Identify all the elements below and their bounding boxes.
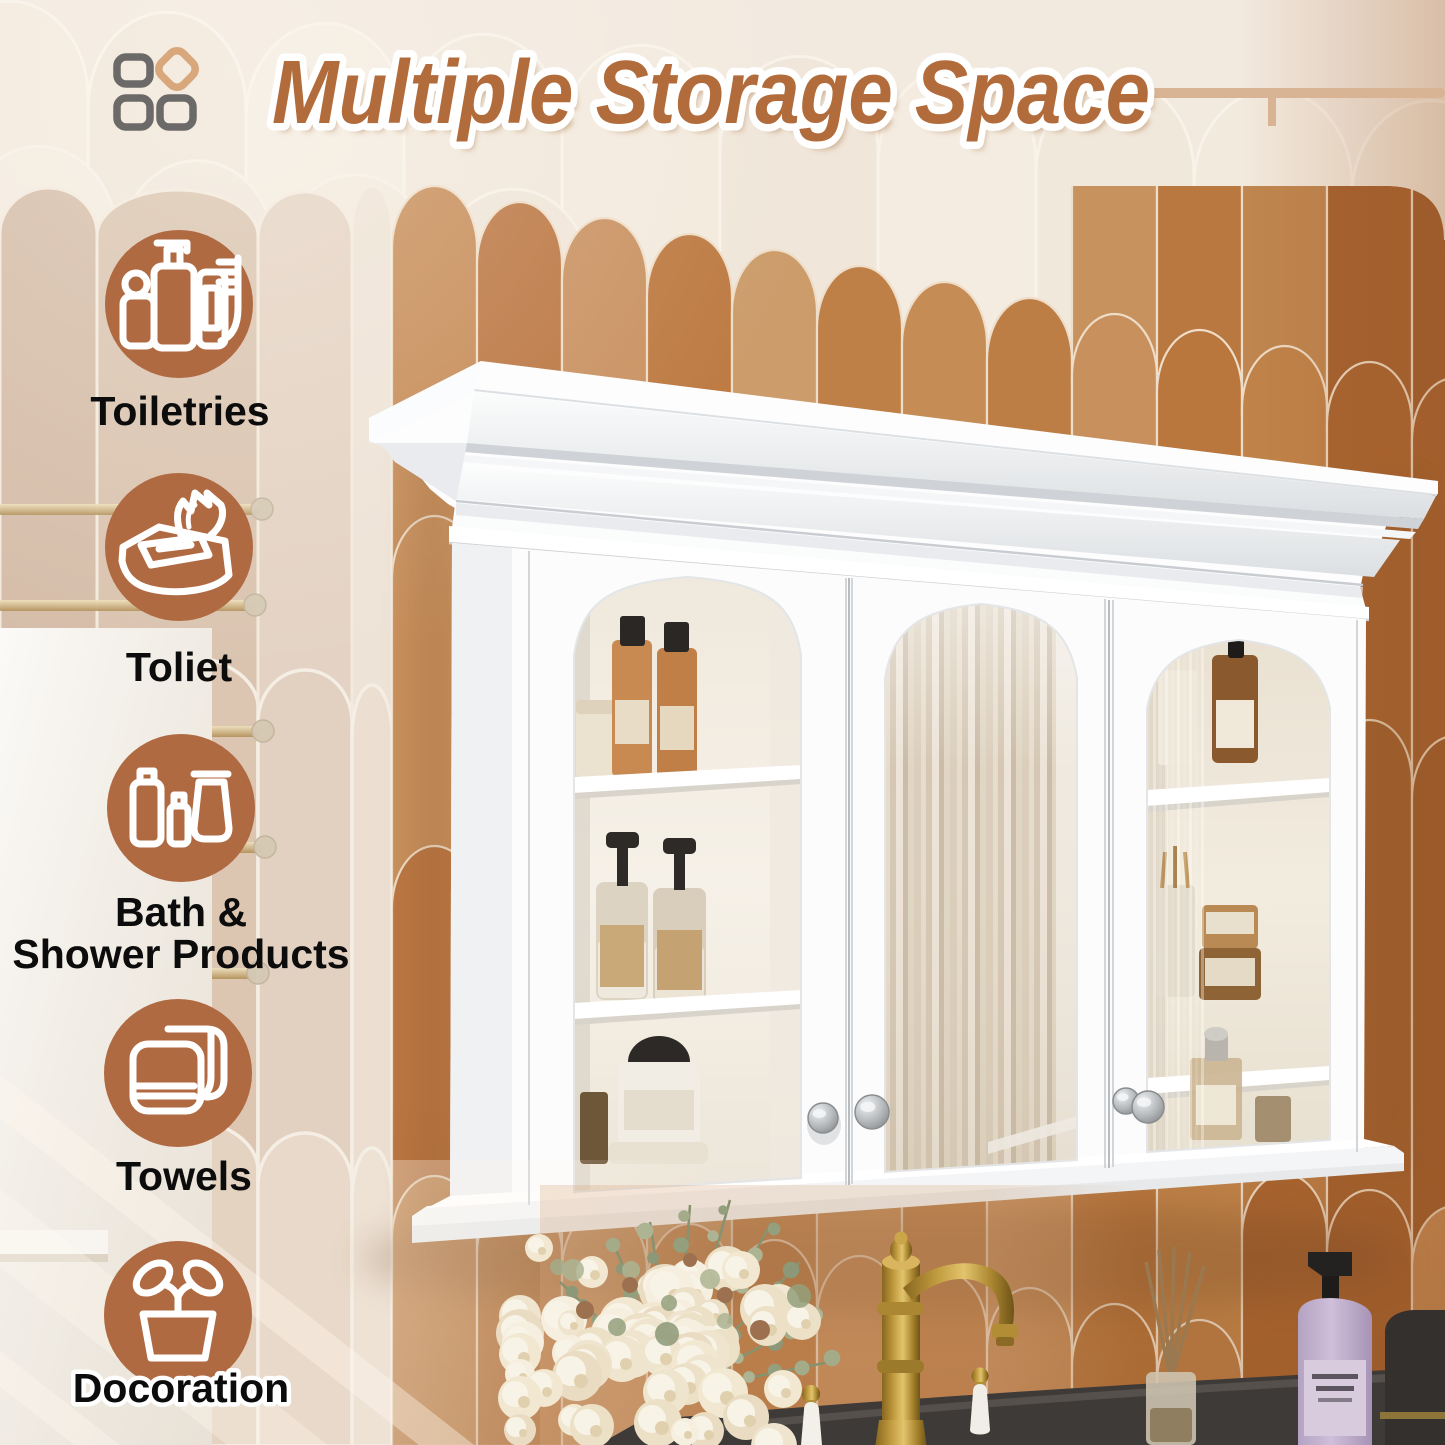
svg-text:Docoration: Docoration	[73, 1365, 289, 1411]
svg-text:Toiletries: Toiletries	[90, 388, 269, 434]
svg-text:Multiple Storage Space: Multiple Storage Space	[272, 43, 1150, 143]
svg-text:Shower Products: Shower Products	[12, 931, 349, 977]
svg-text:Bath &: Bath &	[115, 889, 247, 935]
svg-text:Towels: Towels	[116, 1153, 252, 1199]
svg-text:Toliet: Toliet	[126, 644, 233, 690]
